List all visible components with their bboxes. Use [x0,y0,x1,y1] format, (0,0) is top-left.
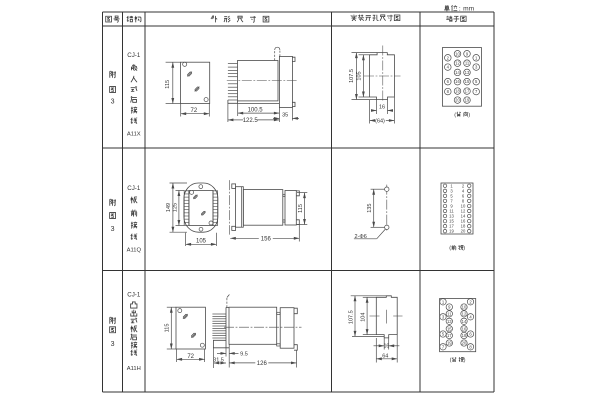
svg-text:10: 10 [462,304,467,309]
svg-text:35: 35 [282,112,288,118]
svg-text:11: 11 [465,61,470,66]
svg-text:18: 18 [455,89,460,94]
svg-text:mm: mm [463,6,474,13]
svg-text:105: 105 [196,238,207,244]
svg-text:107.5: 107.5 [348,310,354,324]
svg-text:3: 3 [111,98,115,105]
svg-text:9.5: 9.5 [240,352,248,358]
svg-text:17: 17 [447,333,452,338]
svg-text:3: 3 [111,226,115,233]
svg-text:20: 20 [462,340,467,345]
svg-text:19: 19 [447,340,452,345]
svg-text:CJ-1: CJ-1 [127,185,141,192]
svg-text:16: 16 [379,104,385,110]
svg-text:64: 64 [382,354,388,360]
svg-text:125: 125 [172,203,178,212]
svg-text:18: 18 [462,333,467,338]
svg-text:20: 20 [461,229,466,234]
svg-text:105: 105 [356,71,362,80]
svg-text:135: 135 [367,204,373,213]
svg-text:20: 20 [455,98,460,103]
svg-text:16: 16 [455,79,460,84]
svg-text:): ) [468,112,470,118]
svg-text:13: 13 [465,70,470,75]
svg-text:14: 14 [455,70,460,75]
svg-text:15: 15 [465,79,470,84]
svg-text:100.5: 100.5 [248,107,264,113]
svg-text:104: 104 [361,313,367,322]
svg-text:3: 3 [111,341,115,348]
svg-text:115: 115 [165,80,171,89]
svg-text:10: 10 [455,51,460,56]
svg-text:): ) [463,246,465,252]
svg-text:12: 12 [455,61,460,66]
svg-text:13: 13 [447,319,452,324]
svg-text:126: 126 [257,361,268,367]
svg-text:115: 115 [298,204,304,213]
svg-text:19: 19 [465,98,470,103]
svg-text:31.5: 31.5 [213,357,224,363]
svg-text:19: 19 [449,229,454,234]
svg-text:(64): (64) [375,119,385,125]
svg-text:A11Q: A11Q [127,248,142,254]
svg-text:115: 115 [165,324,171,333]
svg-text:149: 149 [166,203,172,212]
svg-text:15: 15 [447,326,452,331]
svg-text:A11H: A11H [127,366,141,372]
svg-text:72: 72 [191,108,198,114]
svg-text::: : [459,5,461,12]
svg-text:72: 72 [187,354,194,360]
svg-text:156: 156 [261,236,272,242]
svg-text:CJ-1: CJ-1 [127,52,141,59]
svg-text:): ) [464,358,466,364]
svg-text:16: 16 [462,326,467,331]
svg-text:16: 16 [384,344,390,350]
svg-text:(: ( [450,358,452,364]
svg-text:(: ( [449,246,451,252]
svg-text:11: 11 [447,311,452,316]
svg-text:14: 14 [462,319,467,324]
svg-text:CJ-1: CJ-1 [127,292,141,299]
svg-text:A11X: A11X [127,132,141,138]
svg-text:(: ( [454,112,456,118]
svg-text:107.5: 107.5 [349,69,355,83]
svg-text:12: 12 [462,311,467,316]
svg-text:17: 17 [465,89,470,94]
svg-text:122.5: 122.5 [243,118,259,124]
